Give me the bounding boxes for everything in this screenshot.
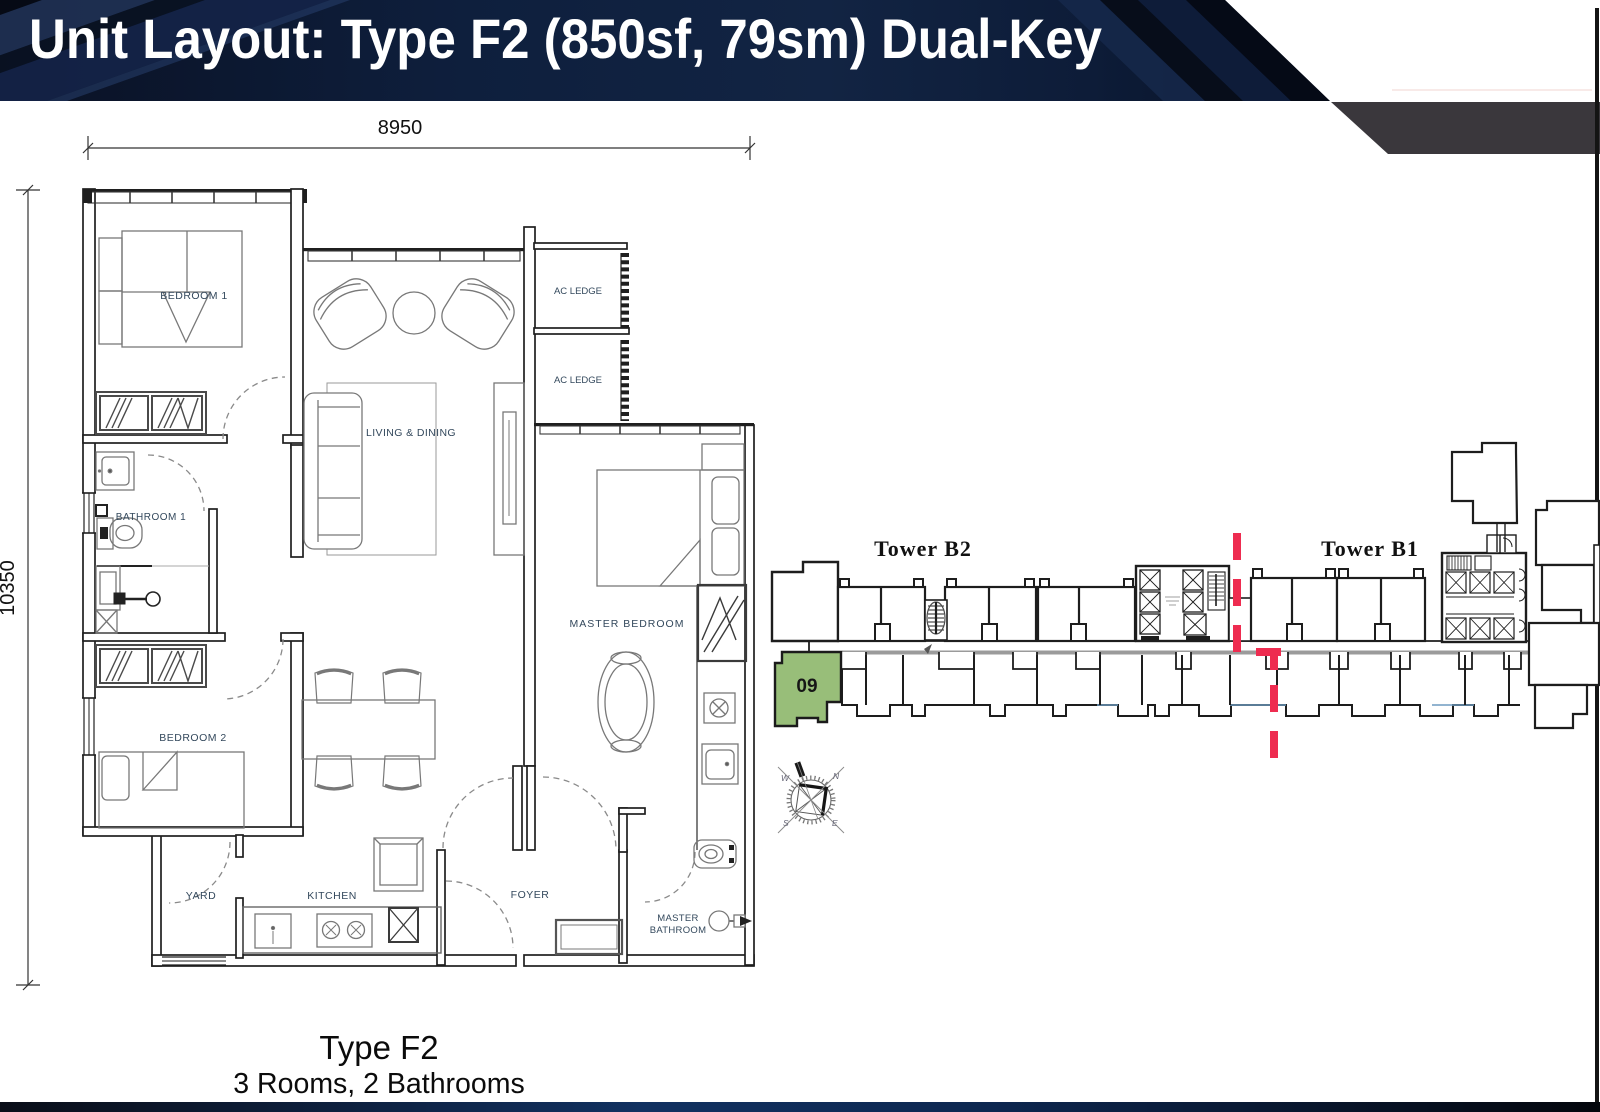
svg-text:Type F2: Type F2 [319,1029,438,1066]
svg-text:AC LEDGE: AC LEDGE [554,286,602,297]
svg-text:YARD: YARD [186,890,216,902]
svg-text:09: 09 [796,676,817,697]
svg-text:E: E [832,818,838,828]
svg-text:KITCHEN: KITCHEN [307,890,357,902]
svg-text:S: S [783,818,789,828]
svg-text:MASTER: MASTER [657,913,698,924]
svg-text:BATHROOM 1: BATHROOM 1 [116,512,186,523]
svg-text:AC LEDGE: AC LEDGE [554,375,602,386]
svg-text:BEDROOM 1: BEDROOM 1 [160,290,228,302]
svg-text:3 Rooms, 2 Bathrooms: 3 Rooms, 2 Bathrooms [233,1068,524,1100]
svg-text:LIVING & DINING: LIVING & DINING [366,427,456,439]
svg-text:BEDROOM 2: BEDROOM 2 [159,732,227,744]
svg-text:N: N [833,771,840,781]
svg-text:MASTER BEDROOM: MASTER BEDROOM [570,618,685,630]
svg-text:10350: 10350 [0,560,19,616]
svg-text:BATHROOM: BATHROOM [650,925,707,936]
svg-text:Tower B1: Tower B1 [1321,536,1419,561]
svg-text:W: W [781,773,790,783]
svg-text:Tower B2: Tower B2 [874,536,972,561]
svg-text:Unit Layout: Type F2 (850sf, 7: Unit Layout: Type F2 (850sf, 79sm) Dual-… [29,7,1102,70]
svg-text:8950: 8950 [378,117,423,139]
svg-text:FOYER: FOYER [511,889,550,901]
